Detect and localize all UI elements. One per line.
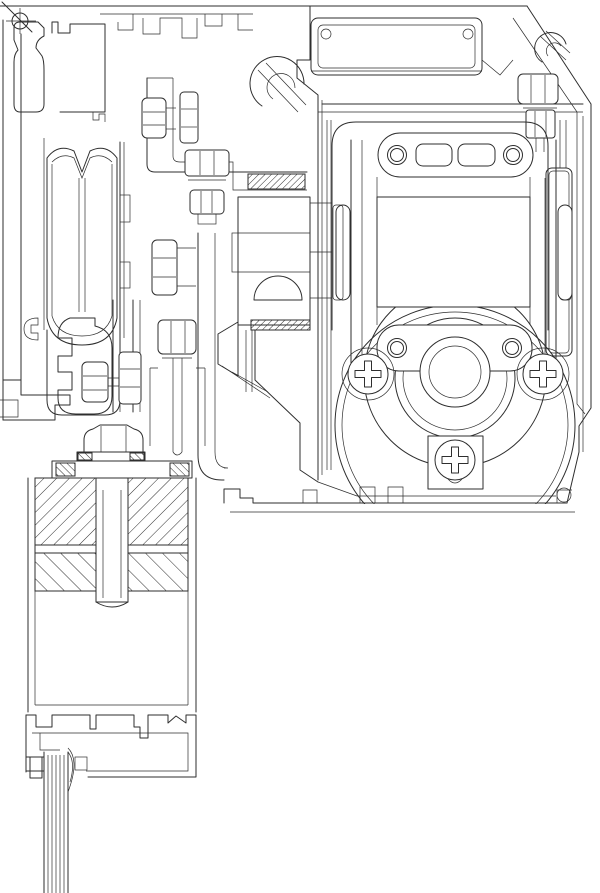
plate-hole: [504, 146, 523, 165]
hex-nut-lower: [190, 190, 224, 224]
clamp-bolt-shaft: [96, 478, 128, 607]
brush-seal: [44, 752, 68, 893]
bottom-screw-block: [428, 436, 483, 489]
plate-hole: [388, 146, 407, 165]
gearbox-body: [377, 197, 530, 307]
drive-boss: [420, 337, 490, 407]
left-wall-profile: [0, 20, 70, 420]
hatched-base: [251, 320, 310, 330]
technical-drawing-page: [0, 0, 600, 893]
door-leaf-profile: [28, 425, 196, 712]
phillips-screw-right: [523, 354, 563, 394]
top-frame-profile: [14, 14, 253, 122]
hex-bolt-vertical: [158, 320, 196, 455]
hex-nut-upper: [185, 150, 229, 180]
hex-bolt-tall: [180, 92, 198, 143]
plate-hole: [503, 339, 522, 358]
motor-gearbox-unit: [332, 122, 572, 407]
plate-hole: [388, 339, 407, 358]
hatched-seat: [248, 174, 305, 189]
vent-plate: [311, 18, 513, 75]
hook-clip-left: [250, 57, 306, 112]
motor-top-plate: [378, 133, 533, 177]
corner-fastener: [2, 2, 36, 34]
technical-drawing-canvas: [0, 0, 600, 893]
roller-wheel-carriage: [24, 138, 196, 415]
right-side-tab: [558, 205, 572, 300]
hex-nut-on-plate: [119, 352, 141, 404]
phillips-screw-bottom: [435, 440, 475, 480]
bottom-rail-profile: [26, 715, 196, 893]
phillips-screw-left: [348, 354, 388, 394]
drive-cylinder: [232, 197, 343, 330]
hex-bolt-left: [142, 98, 176, 138]
